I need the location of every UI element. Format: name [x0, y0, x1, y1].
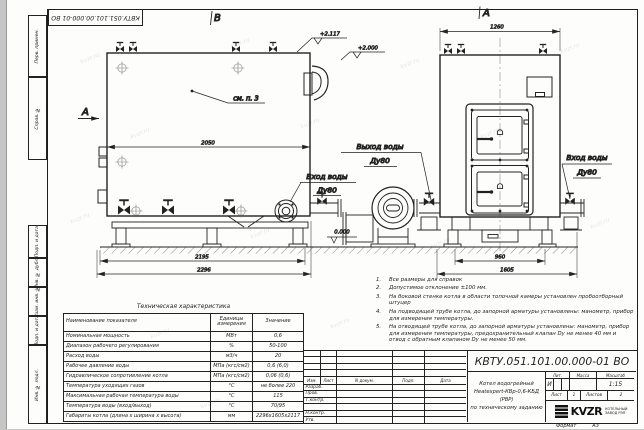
margin-cell-inv-podl: Инв. № подл.	[28, 345, 47, 424]
mass-header: Масса	[570, 372, 597, 379]
col-dokum: N докум.	[337, 377, 393, 385]
kvzr-emblem-icon	[555, 405, 568, 418]
margin-cell-vzam-inv: Взам. инв. №	[28, 287, 47, 316]
table-row: Рабочее давление водыМПа (кгс/см2)0,6 (6…	[64, 361, 303, 371]
margin-cell-perv-primen: Перв. примен.	[28, 15, 47, 77]
header-value: Значение	[253, 314, 303, 331]
note-text: На боковой стенке котла в области топочн…	[389, 294, 634, 308]
cell-value: 50-100	[253, 341, 303, 351]
cell-units: °С	[211, 381, 253, 391]
cell-units: МПа (кгс/см2)	[211, 361, 253, 371]
lit-mass-scale-values: И 1:15	[546, 379, 636, 391]
cell-units: м3/ч	[211, 351, 253, 361]
note-item: 1.Все размеры для справок	[376, 277, 634, 284]
note-number: 3.	[376, 294, 389, 308]
lit-mass-scale-header: Лит. Масса Масштаб	[546, 372, 636, 379]
table-row: Номинальная мощностьМВт0,6	[64, 331, 303, 341]
note-number: 4.	[376, 309, 389, 323]
col-list: Лист	[321, 377, 337, 385]
title-block: Изм. Лист N докум. Подп. Дата Разраб. Пр…	[303, 350, 638, 424]
sheets-value: 2	[608, 391, 634, 401]
margin-cell-podp-data-2: Подп. и дата	[28, 316, 47, 345]
logo-subtitle: КОТЕЛЬНЫЙ ЗАВОД РЭП	[605, 407, 627, 416]
lit-value: И	[546, 379, 554, 391]
lit-header: Лит.	[546, 372, 570, 379]
cell-name: Гидравлическое сопротивление котла	[64, 371, 211, 381]
tech-characteristics: Техническая характеристика Наименование …	[63, 303, 304, 422]
table-row: Расход водым3/ч20	[64, 351, 303, 361]
margin-label: Подп. и дата	[35, 316, 40, 345]
format-value: А3	[592, 423, 599, 429]
title-block-right: Лит. Масса Масштаб И 1:15 Лист 1 Листов …	[546, 372, 636, 422]
cell-name: Максимальная рабочая температура воды	[64, 391, 211, 401]
note-text: На отводящей трубе котла, до запорной ар…	[389, 324, 634, 344]
cell-value: 20	[253, 351, 303, 361]
table-row: Диапазон рабочего регулирования%50-100	[64, 341, 303, 351]
cell-units: %	[211, 341, 253, 351]
cell-value: не более 220	[253, 381, 303, 391]
cell-name: Температура воды (вход/выход)	[64, 401, 211, 411]
note-number: 5.	[376, 324, 389, 344]
cell-value: 115	[253, 391, 303, 401]
margin-cell-podp-data-1: Подп. и дата	[28, 225, 47, 258]
scale-value: 1:15	[597, 379, 634, 391]
tech-table: Наименование показателя Единицы измерени…	[63, 313, 304, 422]
note-text: Все размеры для справок	[389, 277, 634, 284]
product-line-1: Котел водогрейный	[479, 381, 533, 389]
table-row: Гидравлическое сопротивление котлаМПа (к…	[64, 371, 303, 381]
note-item: 4.На подводящей трубе котла, до запорной…	[376, 309, 634, 323]
table-row: Габариты котла (длина х ширина х высота)…	[64, 411, 303, 421]
cell-name: Габариты котла (длина х ширина х высота)	[64, 411, 211, 421]
notes-list: 1.Все размеры для справок 2.Допустимое о…	[376, 277, 634, 346]
sig-label: Утв.	[304, 417, 337, 424]
signature-header: Изм. Лист N докум. Подп. Дата	[304, 377, 467, 385]
format-note: Формат А3	[556, 423, 599, 429]
margin-label: Инв. № дубл.	[35, 258, 40, 287]
product-name: Котел водогрейный Heatexpert-КВр-0,6-КБД…	[468, 372, 546, 422]
col-podp: Подп.	[393, 377, 425, 385]
tech-table-header: Наименование показателя Единицы измерени…	[64, 314, 303, 331]
margin-cell-inv-dubl: Инв. № дубл.	[28, 258, 47, 287]
cell-units: МПа (кгс/см2)	[211, 371, 253, 381]
cell-units: °С	[211, 391, 253, 401]
signature-row: Утв.	[304, 417, 467, 424]
sheets-label: Листов	[581, 391, 608, 401]
margin-label: Инв. № подл.	[35, 369, 40, 401]
cell-value: 70/95	[253, 401, 303, 411]
sheet-value: 1	[568, 391, 581, 401]
col-izm: Изм.	[304, 377, 321, 385]
cell-name: Диапазон рабочего регулирования	[64, 341, 211, 351]
cell-units: °С	[211, 401, 253, 411]
cell-name: Температура уходящих газов	[64, 381, 211, 391]
top-reference-stamp: КВТУ.051.101.00.000-01 ВО	[48, 9, 143, 26]
margin-label: Взам. инв. №	[35, 287, 40, 316]
note-number: 2.	[376, 285, 389, 292]
format-label: Формат	[556, 423, 576, 429]
sheet-count-row: Лист 1 Листов 2	[546, 391, 636, 401]
cell-value: 0,06 (0,6)	[253, 371, 303, 381]
table-row: Температура воды (вход/выход)°С70/95	[64, 401, 303, 411]
stamp-number: КВТУ.051.101.00.000-01 ВО	[51, 14, 140, 21]
margin-label: Справ. №	[35, 107, 40, 130]
scale-header: Масштаб	[597, 372, 634, 379]
cell-name: Рабочее давление воды	[64, 361, 211, 371]
cell-value: 2296х1605х2117	[253, 411, 303, 421]
logo-text: KVZR	[571, 405, 602, 418]
mass-value	[570, 379, 597, 391]
cell-value: 0,6	[253, 331, 303, 341]
note-item: 5.На отводящей трубе котла, до запорной …	[376, 324, 634, 344]
note-item: 2.Допустимое отклонение ±100 мм.	[376, 285, 634, 292]
cell-units: МВт	[211, 331, 253, 341]
header-units: Единицы измерения	[211, 314, 253, 331]
company-logo: KVZR КОТЕЛЬНЫЙ ЗАВОД РЭП	[546, 401, 636, 422]
signature-table: Изм. Лист N докум. Подп. Дата Разраб. Пр…	[304, 351, 468, 422]
product-line-2: Heatexpert-КВр-0,6-КБД (РВР)	[468, 389, 545, 405]
logo-line-1: КОТЕЛЬНЫЙ	[605, 407, 627, 411]
margin-label: Подп. и дата	[35, 226, 40, 257]
document-number: КВТУ.051.101.00.000-01 ВО	[468, 351, 636, 372]
note-item: 3.На боковой стенке котла в области топо…	[376, 294, 634, 308]
cell-name: Номинальная мощность	[64, 331, 211, 341]
cell-value: 0,6 (6,0)	[253, 361, 303, 371]
header-name: Наименование показателя	[64, 314, 211, 331]
sheet-label: Лист	[546, 391, 568, 401]
margin-cell-sprav: Справ. №	[28, 77, 47, 160]
logo-line-2: ЗАВОД РЭП	[605, 411, 625, 415]
margin-label: Перв. примен.	[35, 29, 40, 64]
product-line-3: по техническому заданию	[470, 405, 542, 413]
table-row: Максимальная рабочая температура воды°С1…	[64, 391, 303, 401]
tech-table-title: Техническая характеристика	[63, 303, 304, 310]
col-data: Дата	[425, 377, 466, 385]
table-row: Температура уходящих газов°Сне более 220	[64, 381, 303, 391]
note-number: 1.	[376, 277, 389, 284]
drawing-page: kvzr.ru kvzr.ru kvzr.ru kvzr.ru kvzr.ru …	[0, 0, 644, 430]
cell-name: Расход воды	[64, 351, 211, 361]
note-text: Допустимое отклонение ±100 мм.	[389, 285, 634, 292]
cell-units: мм	[211, 411, 253, 421]
note-text: На подводящей трубе котла, до запорной а…	[389, 309, 634, 323]
